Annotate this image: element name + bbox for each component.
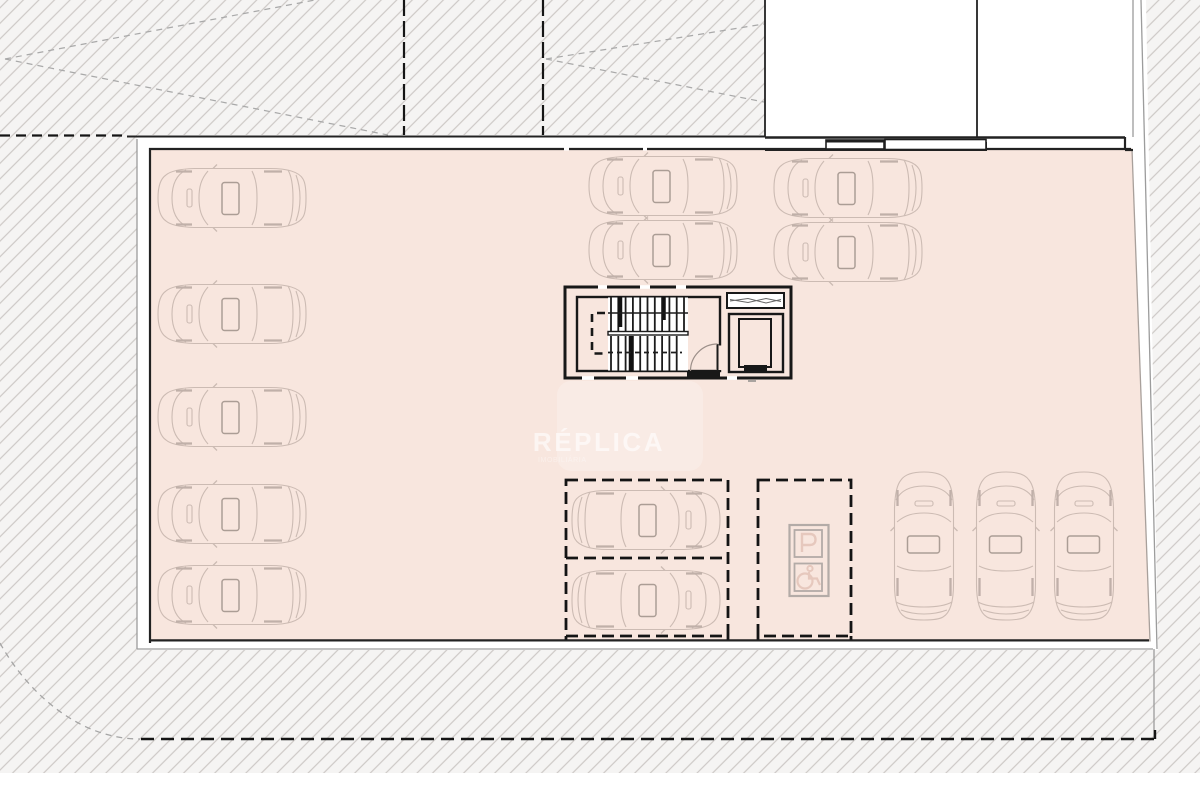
svg-text:RÉPLICA: RÉPLICA — [533, 427, 665, 457]
svg-text:IMOBILIÁRIA: IMOBILIÁRIA — [538, 455, 587, 464]
